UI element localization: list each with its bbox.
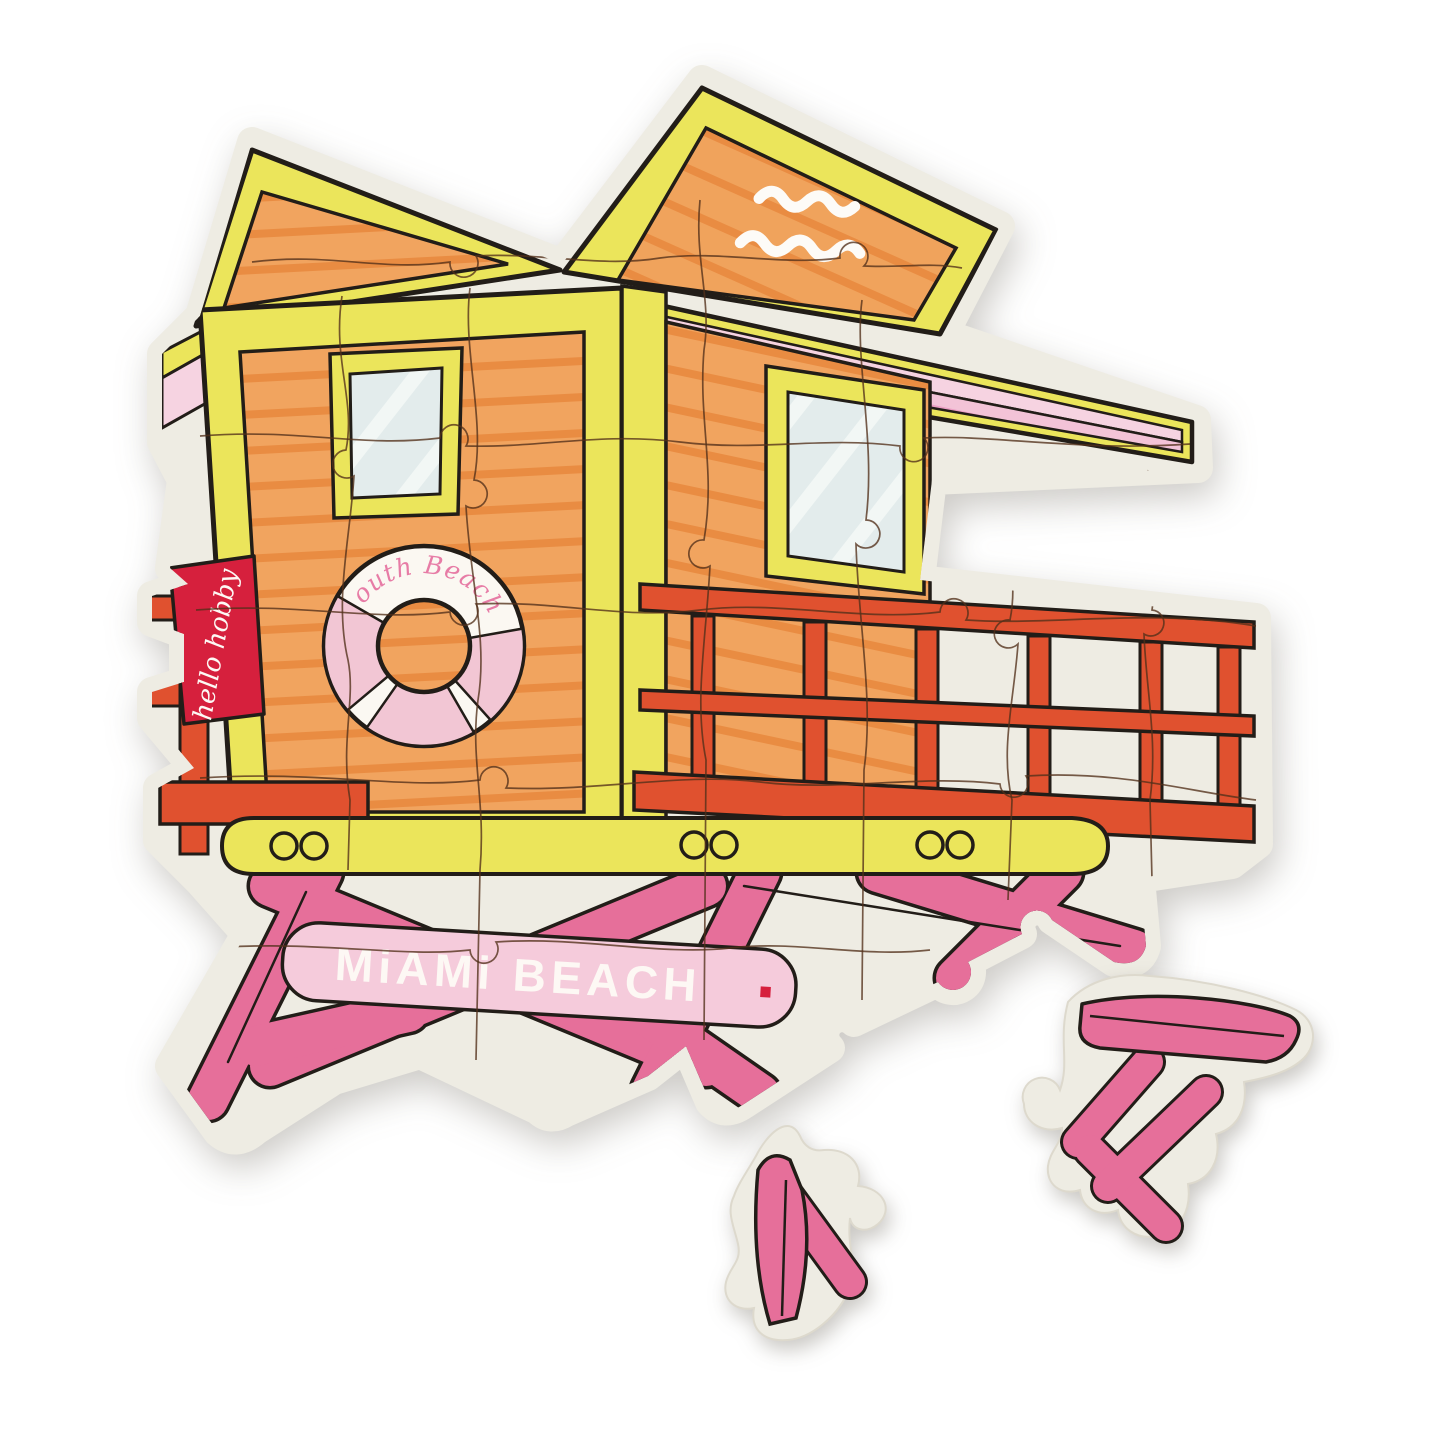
right-window bbox=[766, 366, 924, 594]
corner-post bbox=[622, 286, 666, 848]
left-window bbox=[330, 348, 462, 518]
loose-piece-1 bbox=[725, 1126, 885, 1340]
life-ring: South Beach. bbox=[324, 546, 524, 746]
base-platform bbox=[222, 818, 1108, 874]
left-window-glass bbox=[350, 368, 442, 498]
product-photo-lifeguard-tower-puzzle: South Beach. bbox=[0, 0, 1445, 1445]
puzzle-photo-svg: South Beach. bbox=[0, 0, 1445, 1445]
loose-piece-2 bbox=[1023, 975, 1313, 1237]
right-window-glass bbox=[788, 392, 904, 572]
assembled-puzzle: South Beach. bbox=[148, 80, 1258, 1140]
